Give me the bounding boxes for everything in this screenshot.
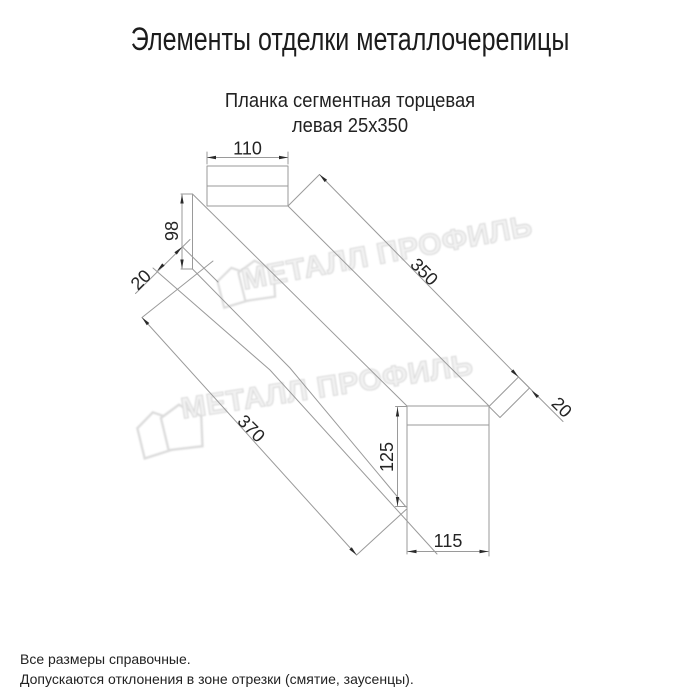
svg-text:МЕТАЛЛ ПРОФИЛЬ: МЕТАЛЛ ПРОФИЛЬ [179,348,476,425]
svg-text:98: 98 [162,221,182,241]
svg-text:125: 125 [377,442,397,472]
svg-text:115: 115 [434,531,463,551]
svg-text:20: 20 [547,393,575,421]
svg-text:110: 110 [233,139,262,159]
svg-text:20: 20 [127,266,155,294]
